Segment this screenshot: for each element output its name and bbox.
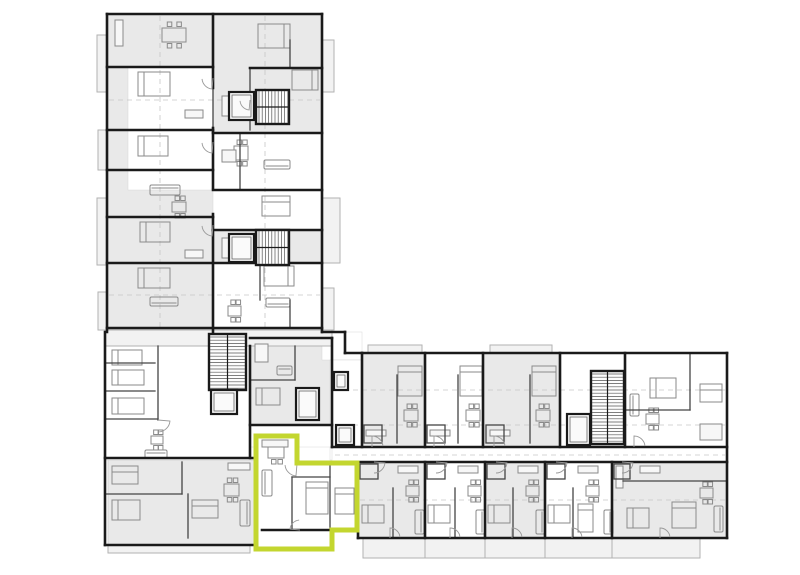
floor-plan-page (0, 0, 800, 575)
floor-plan-canvas (0, 0, 800, 575)
